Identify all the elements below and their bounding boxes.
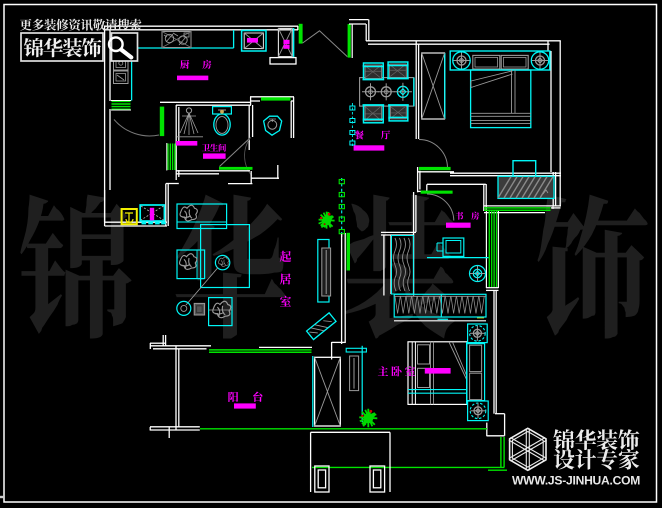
svg-text:WWW.JS-JINHUA.COM: WWW.JS-JINHUA.COM <box>512 473 640 487</box>
